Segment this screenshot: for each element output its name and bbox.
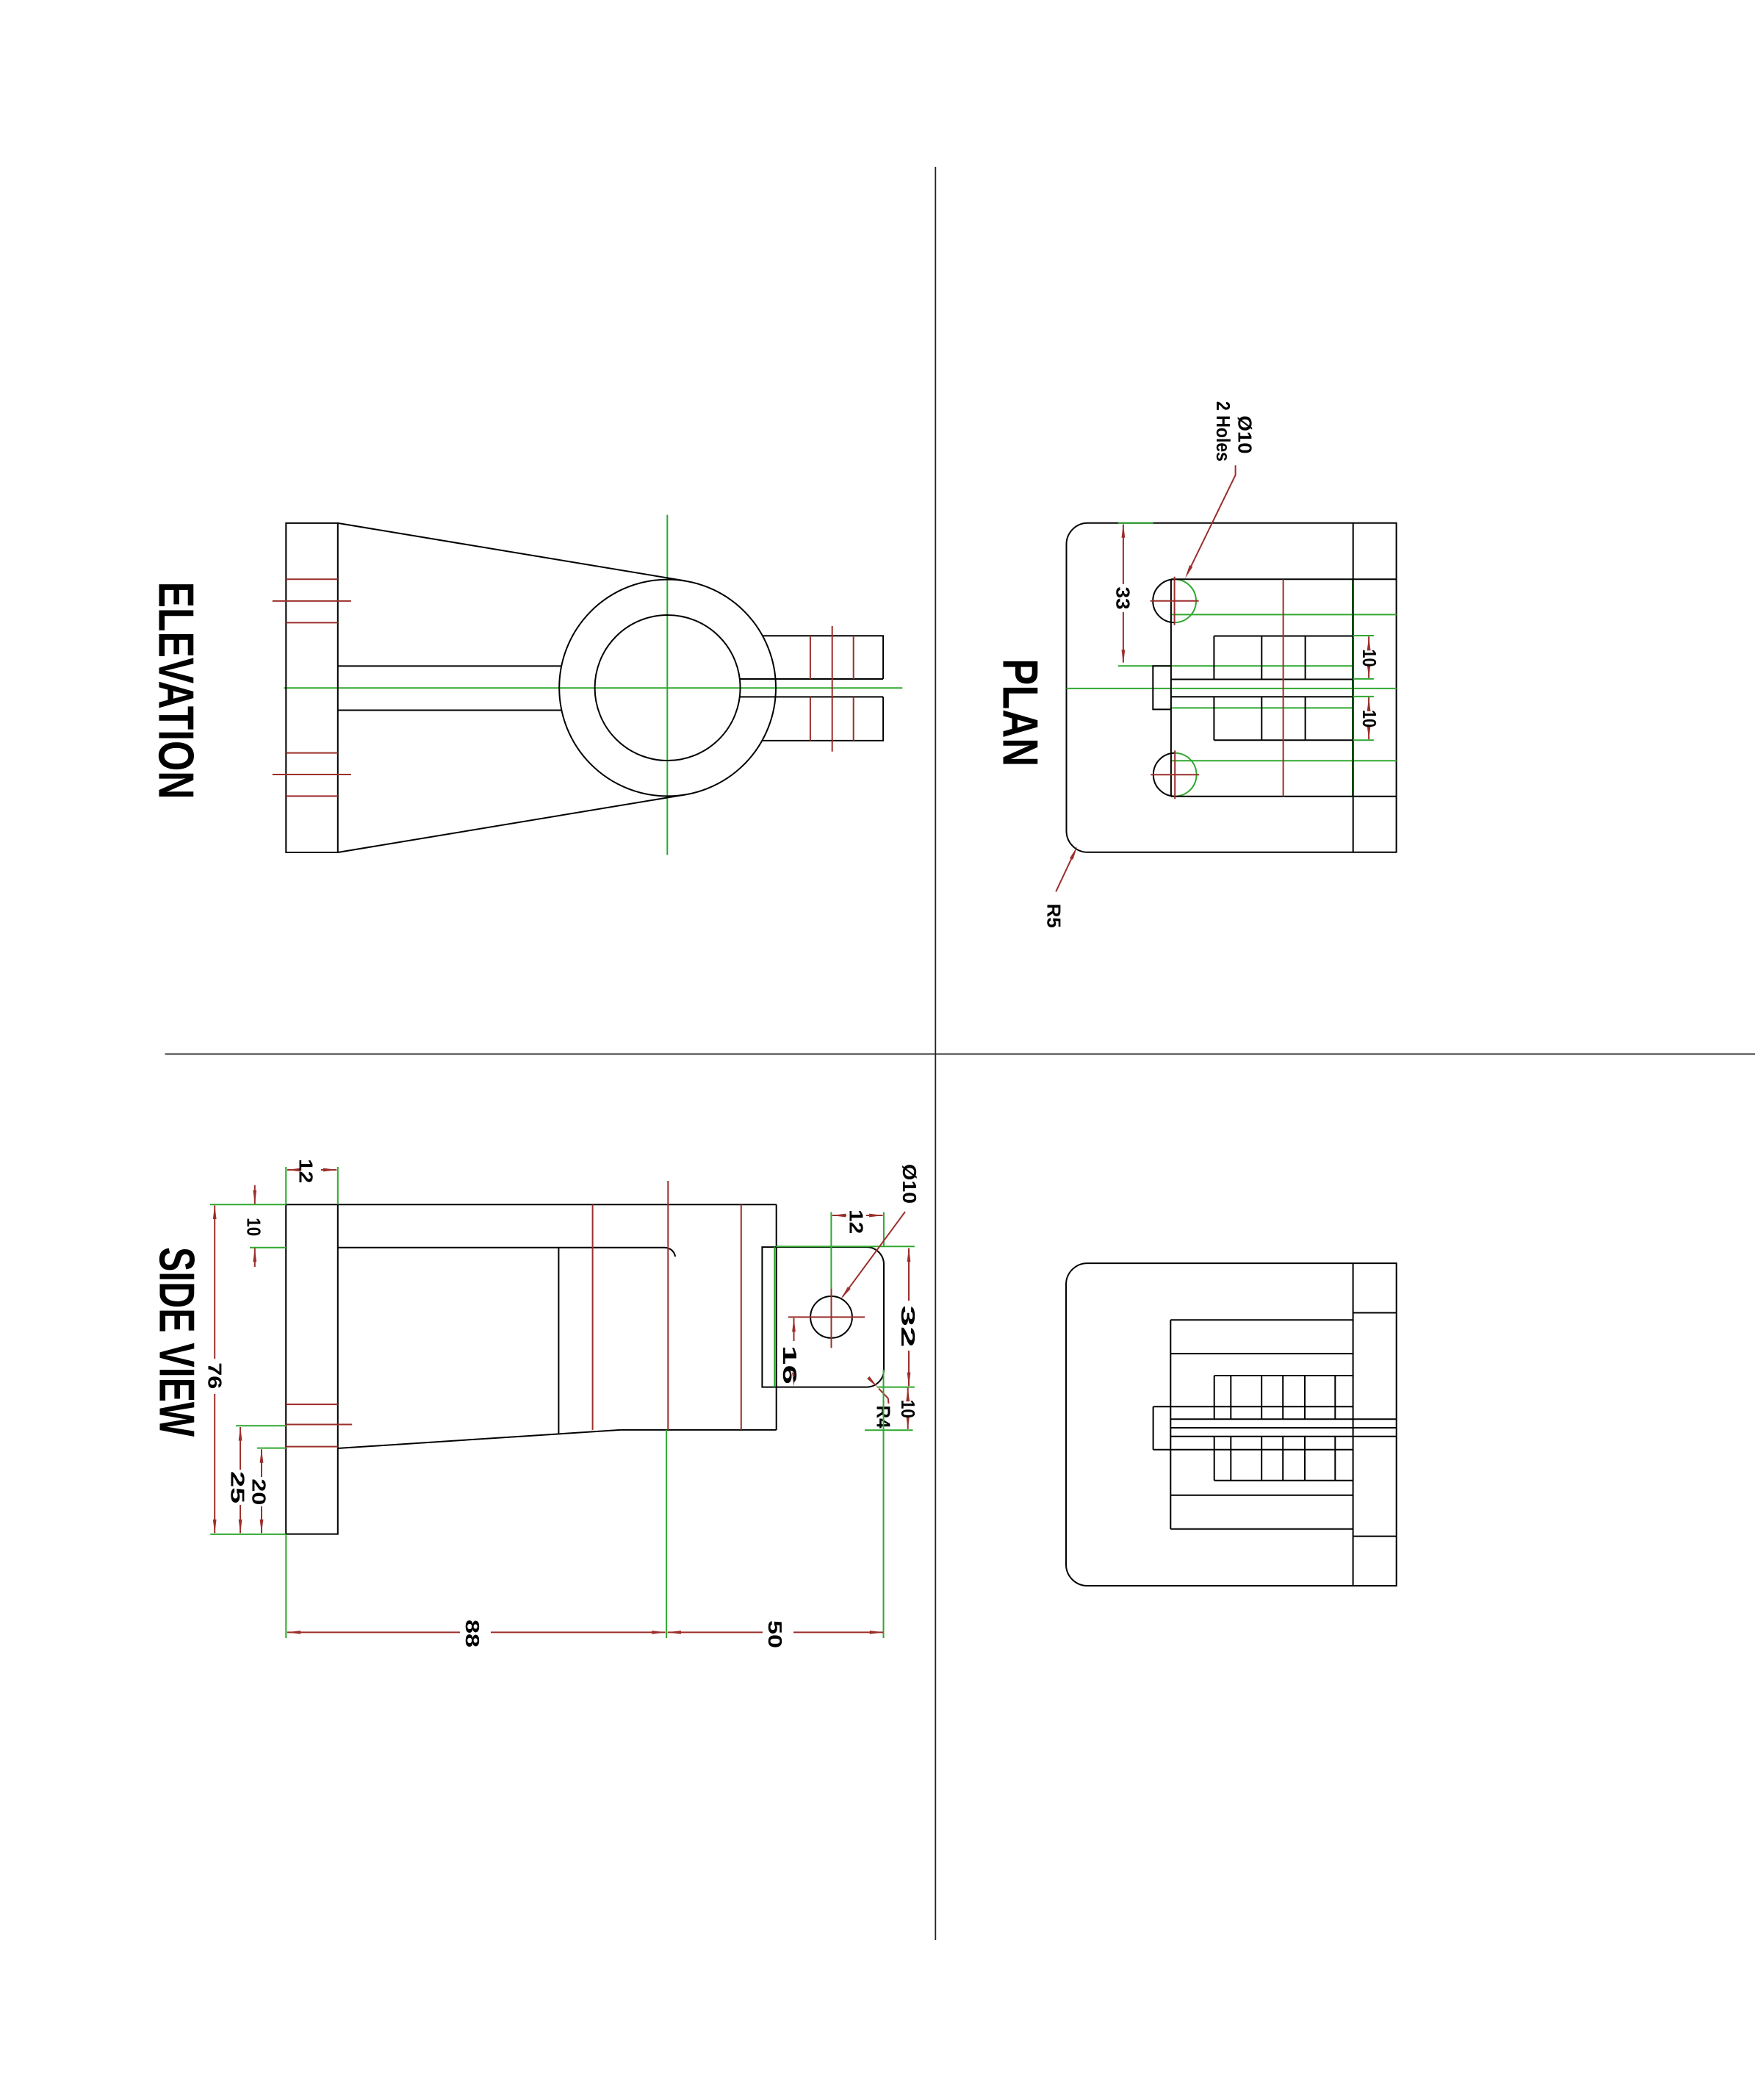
svg-text:10: 10 [1358,710,1380,727]
svg-text:32: 32 [897,1306,919,1348]
svg-text:25: 25 [226,1471,248,1503]
svg-text:10: 10 [1358,650,1380,667]
svg-text:76: 76 [204,1362,226,1389]
svg-text:Ø10: Ø10 [899,1164,921,1204]
svg-text:33: 33 [1112,587,1134,610]
svg-text:2 Holes: 2 Holes [1212,401,1234,461]
svg-text:10: 10 [897,1400,919,1418]
svg-text:SIDE VIEW: SIDE VIEW [148,1247,204,1437]
svg-text:10: 10 [243,1218,265,1236]
svg-text:20: 20 [248,1478,270,1505]
svg-text:12: 12 [295,1159,317,1183]
svg-text:88: 88 [461,1620,483,1647]
svg-text:R5: R5 [1043,904,1065,928]
svg-text:PLAN: PLAN [993,658,1048,766]
svg-text:ELEVATION: ELEVATION [148,582,204,799]
svg-text:Ø10: Ø10 [1234,416,1256,454]
svg-text:12: 12 [846,1210,868,1234]
svg-text:50: 50 [764,1620,786,1648]
svg-text:16: 16 [779,1345,801,1384]
